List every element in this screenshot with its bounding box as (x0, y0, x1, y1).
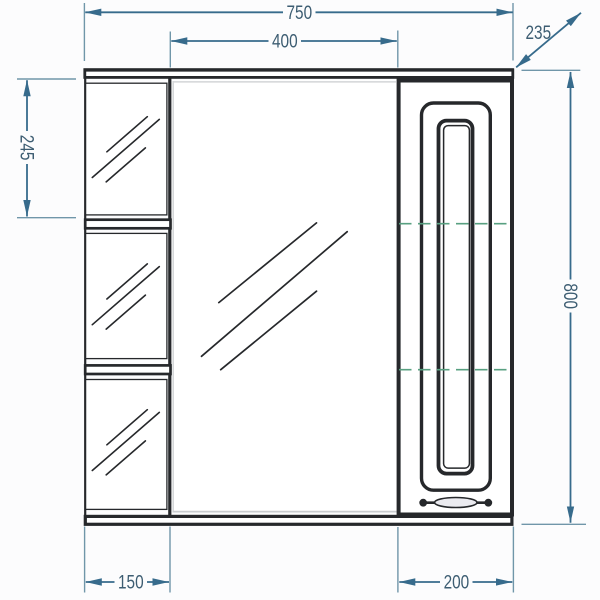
svg-text:800: 800 (559, 283, 580, 309)
svg-text:400: 400 (272, 32, 298, 53)
svg-text:245: 245 (15, 135, 36, 161)
svg-text:150: 150 (118, 573, 144, 594)
svg-text:200: 200 (444, 573, 470, 594)
svg-text:750: 750 (287, 3, 313, 24)
svg-text:235: 235 (526, 23, 552, 44)
